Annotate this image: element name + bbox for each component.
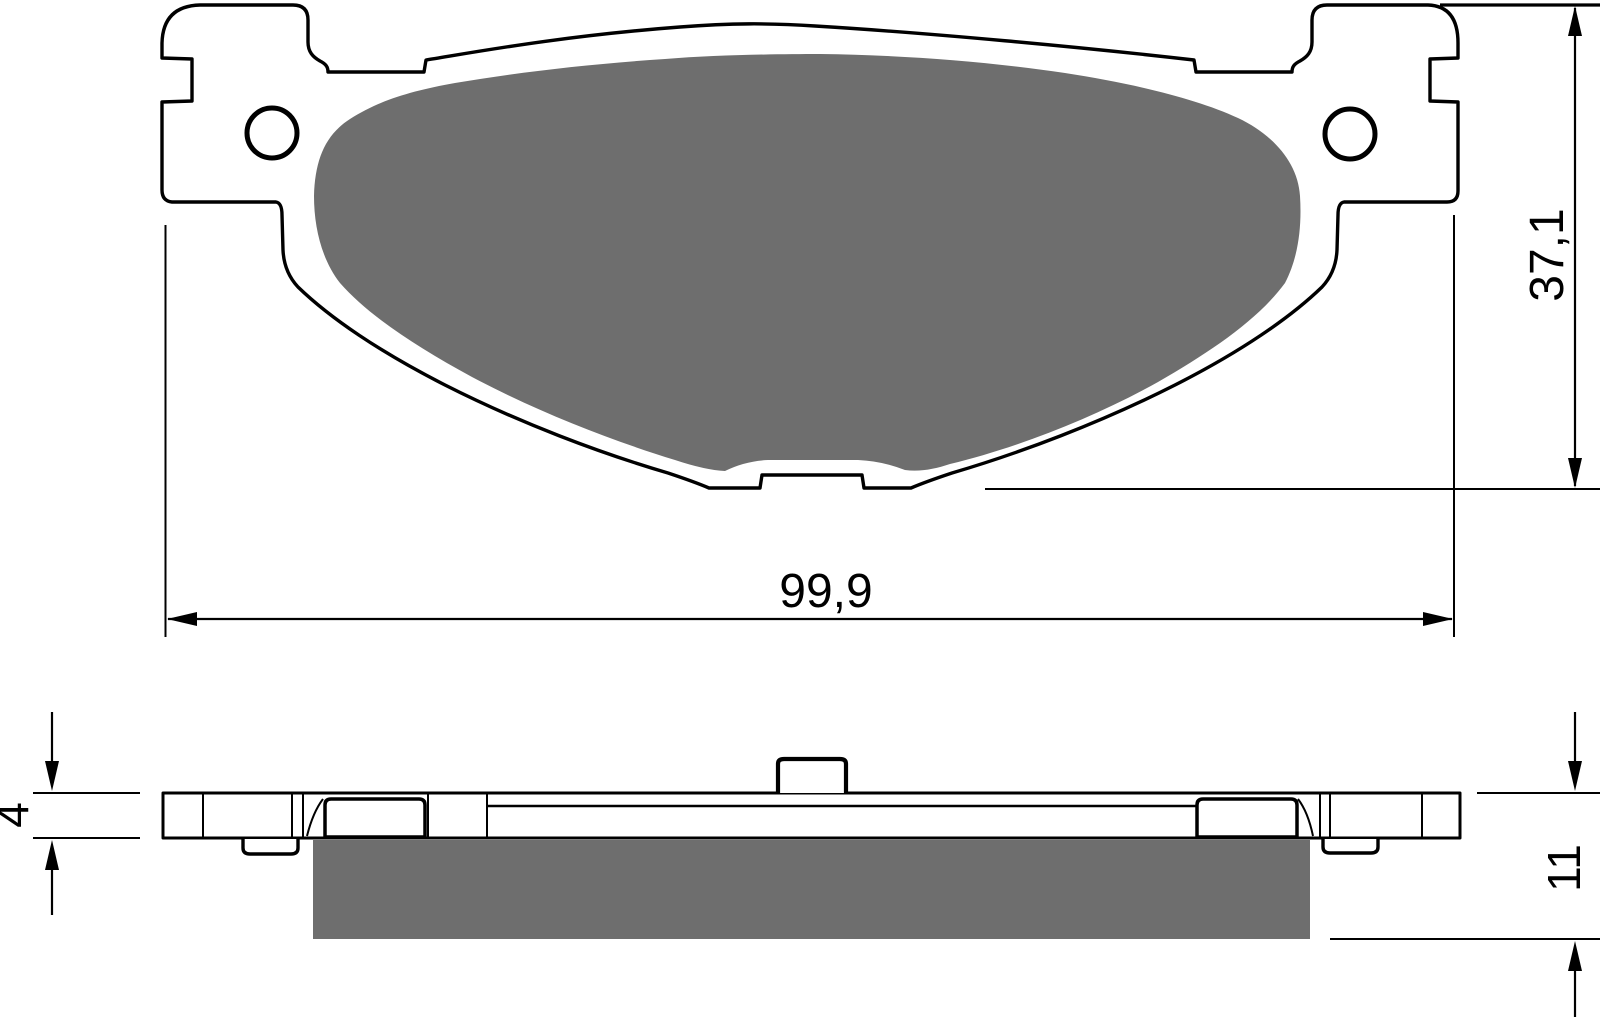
arrowhead-down — [1568, 458, 1582, 488]
friction-material-side — [313, 840, 1310, 939]
backplate-thickness-label: 4 — [0, 802, 38, 828]
bottom-tab-left — [243, 839, 298, 854]
mounting-hole-right — [1325, 109, 1375, 159]
arrowhead-right — [1423, 612, 1453, 626]
arrowhead-total-top — [1568, 761, 1582, 791]
arrowhead-plate-bottom — [45, 840, 59, 870]
technical-drawing-canvas: 99,9 37,1 — [0, 0, 1600, 1018]
backplate-top-tab — [778, 759, 846, 793]
brake-pad-top-view — [162, 5, 1458, 488]
shim-left — [325, 799, 425, 837]
brake-pad-drawing: 99,9 37,1 — [0, 0, 1600, 1018]
dimension-total-thickness: 11 — [1330, 712, 1600, 1017]
total-thickness-label: 11 — [1538, 844, 1590, 892]
arrowhead-total-bottom — [1568, 941, 1582, 971]
friction-material-top-view — [314, 54, 1300, 471]
dimension-backplate-thickness: 4 — [0, 712, 140, 915]
brake-pad-side-view — [163, 759, 1460, 939]
dimension-height-label: 37,1 — [1521, 208, 1574, 301]
mounting-hole-left — [247, 108, 297, 158]
dimension-width-label: 99,9 — [779, 565, 872, 618]
arrowhead-up — [1568, 6, 1582, 36]
arrowhead-plate-top — [45, 761, 59, 791]
shim-right — [1197, 799, 1297, 837]
bottom-tab-right — [1323, 839, 1378, 853]
arrowhead-left — [167, 612, 197, 626]
